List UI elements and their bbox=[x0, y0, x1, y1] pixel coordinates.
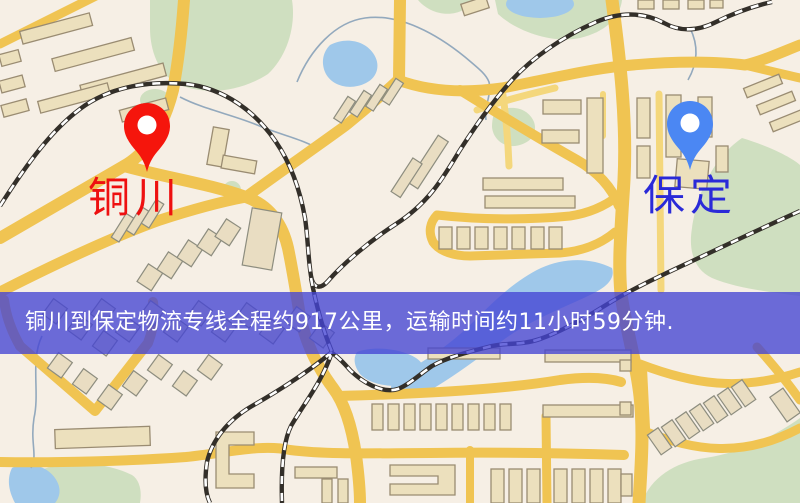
blue-pin-icon bbox=[665, 100, 715, 171]
route-info-banner: 铜川到保定物流专线全程约917公里，运输时间约11小时59分钟. bbox=[0, 292, 800, 354]
destination-marker: 保定 bbox=[620, 100, 760, 217]
red-pin-icon bbox=[122, 102, 172, 173]
map-canvas bbox=[0, 0, 800, 503]
origin-city-label: 铜川 bbox=[53, 177, 217, 219]
origin-marker: 铜川 bbox=[77, 102, 217, 219]
destination-city-label: 保定 bbox=[620, 175, 760, 217]
logistics-route-map: 铜川到保定物流专线全程约917公里，运输时间约11小时59分钟. 铜川 保定 bbox=[0, 0, 800, 503]
route-info-text: 铜川到保定物流专线全程约917公里，运输时间约11小时59分钟. bbox=[25, 310, 674, 335]
